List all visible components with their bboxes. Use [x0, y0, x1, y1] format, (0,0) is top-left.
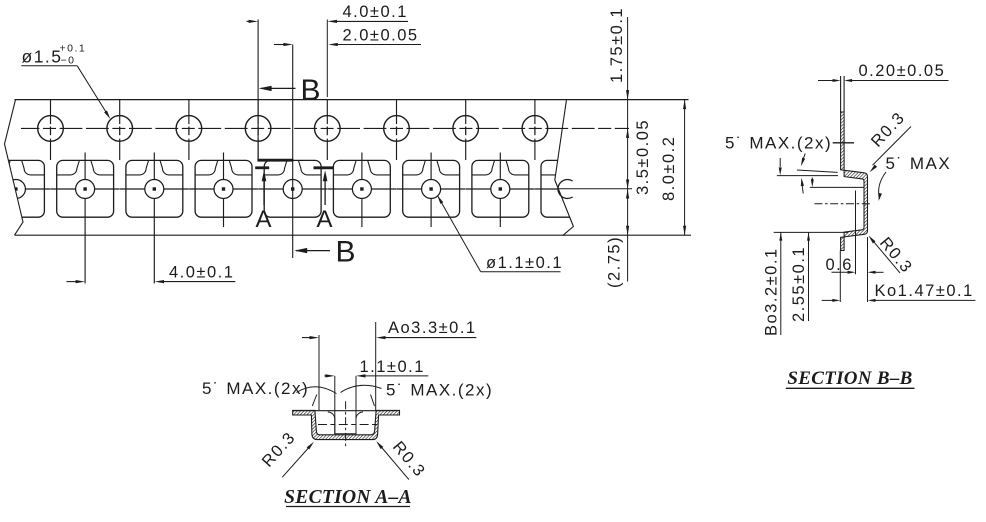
svg-text:5˙ MAX.(2x): 5˙ MAX.(2x): [386, 381, 493, 400]
svg-text:Bo3.2±0.1: Bo3.2±0.1: [762, 247, 780, 336]
svg-text:−0: −0: [61, 55, 76, 67]
svg-text:SECTION A–A: SECTION A–A: [284, 487, 412, 508]
svg-text:Ko1.47±0.1: Ko1.47±0.1: [875, 282, 974, 300]
svg-text:SECTION B–B: SECTION B–B: [787, 368, 912, 389]
svg-text:4.0±0.1: 4.0±0.1: [169, 264, 234, 282]
svg-text:+0.1: +0.1: [60, 43, 87, 55]
svg-text:A: A: [317, 206, 335, 233]
svg-text:5˙ MAX.(2x): 5˙ MAX.(2x): [202, 379, 309, 398]
svg-text:B: B: [301, 74, 323, 107]
svg-text:1.75±0.1: 1.75±0.1: [608, 7, 626, 83]
svg-text:5˙ MAX: 5˙ MAX: [886, 154, 952, 173]
svg-text:5˙ MAX.(2x): 5˙ MAX.(2x): [725, 134, 832, 153]
svg-text:8.0±0.2: 8.0±0.2: [660, 136, 678, 201]
svg-text:0.20±0.05: 0.20±0.05: [859, 62, 946, 80]
svg-text:2.55±0.1: 2.55±0.1: [790, 246, 808, 322]
svg-text:ø1.1±0.1: ø1.1±0.1: [486, 254, 563, 272]
svg-text:1.1±0.1: 1.1±0.1: [360, 358, 425, 376]
svg-text:0.6: 0.6: [826, 256, 853, 274]
svg-text:ø1.5: ø1.5: [22, 47, 63, 67]
svg-text:A: A: [256, 206, 274, 233]
svg-text:(2.75): (2.75): [606, 236, 624, 288]
svg-text:2.0±0.05: 2.0±0.05: [343, 27, 419, 45]
svg-text:3.5±0.05: 3.5±0.05: [634, 119, 652, 195]
svg-text:B: B: [336, 236, 358, 269]
svg-text:4.0±0.1: 4.0±0.1: [343, 3, 408, 21]
svg-text:Ao3.3±0.1: Ao3.3±0.1: [388, 319, 477, 337]
